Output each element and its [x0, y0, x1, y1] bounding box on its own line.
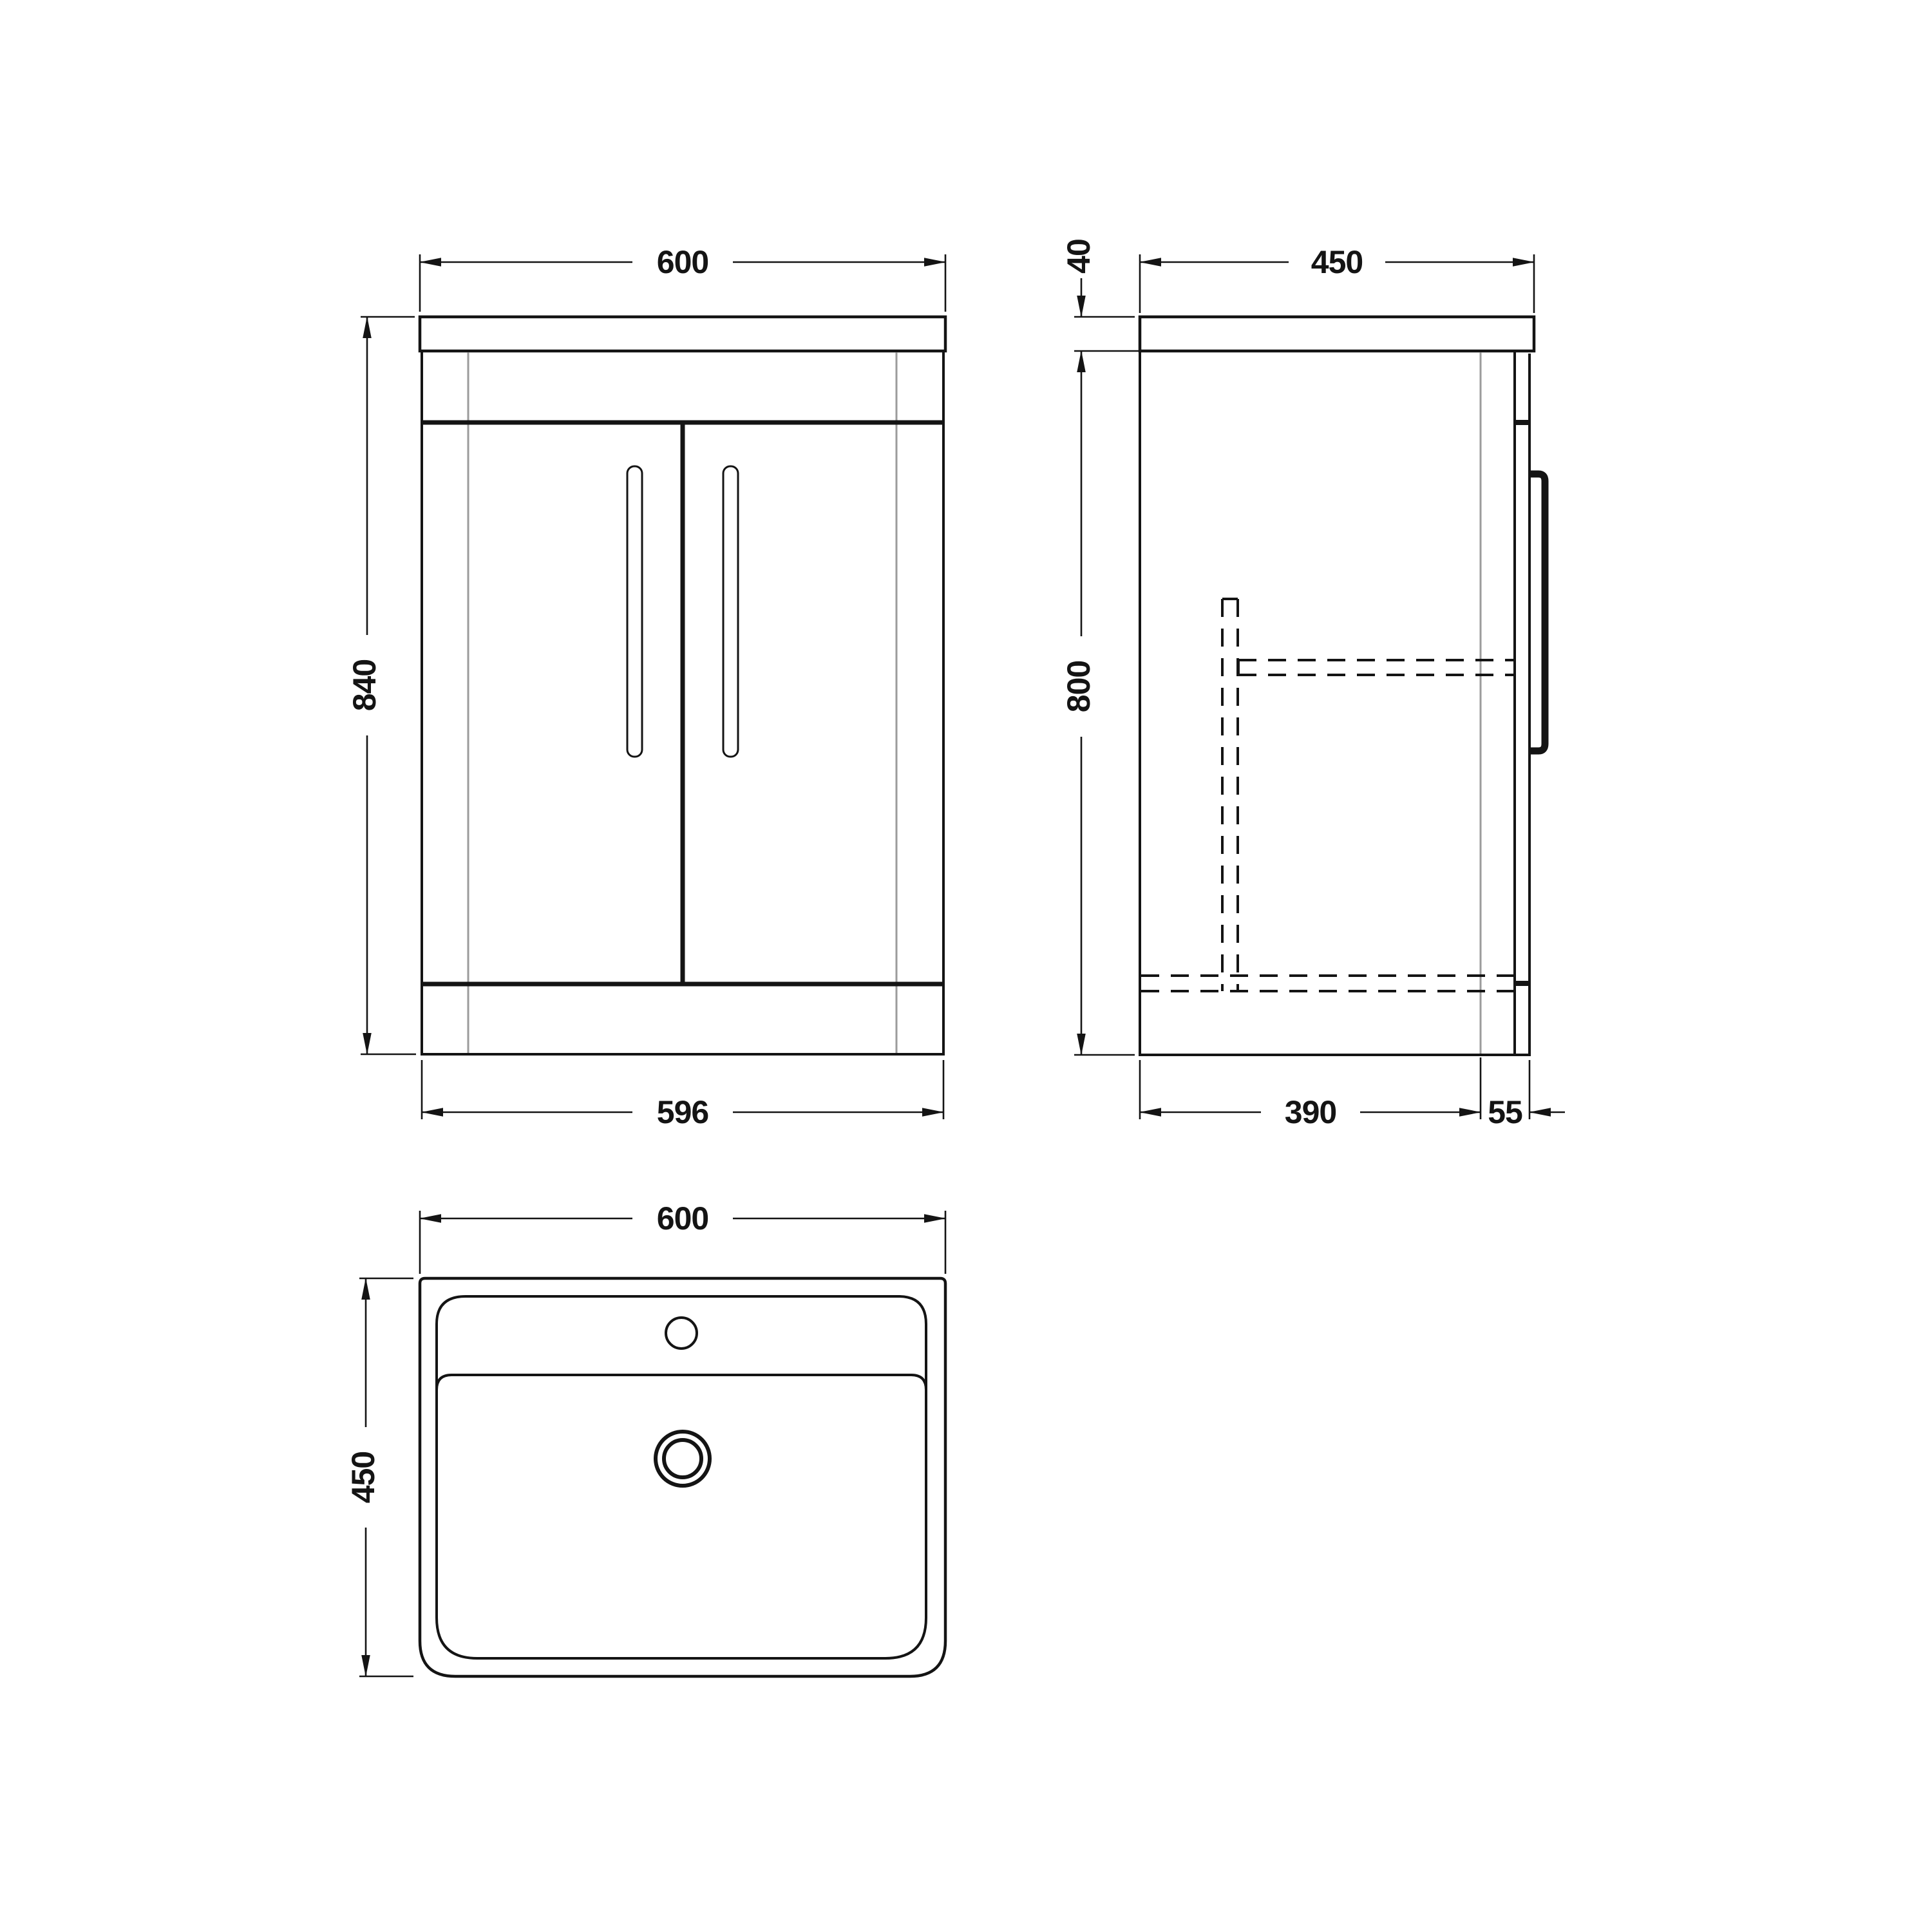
- side-dim-counter-thickness-label: 40: [1061, 239, 1097, 274]
- plan-view: 600 450: [345, 1200, 945, 1676]
- side-dim-counter-thickness: [1074, 278, 1140, 351]
- vanity-drawing-svg: 600 840 596: [0, 0, 1932, 1932]
- plan-bowl-edge: [437, 1375, 926, 1390]
- side-hidden-pipe: [1222, 599, 1238, 991]
- side-cabinet-body: [1140, 351, 1515, 1055]
- side-dim-depth-top-label: 450: [1311, 244, 1363, 280]
- front-dim-height-label: 840: [346, 659, 383, 711]
- side-dim-door-offset-label: 55: [1488, 1094, 1522, 1130]
- side-countertop: [1140, 317, 1534, 351]
- side-door-handle: [1531, 474, 1545, 751]
- side-view: 40 450 800: [1061, 239, 1565, 1130]
- front-view: 600 840 596: [346, 244, 945, 1130]
- side-hidden-bottom-panel: [1141, 976, 1514, 991]
- front-dim-width-top-label: 600: [657, 244, 708, 280]
- plan-dim-width-label: 600: [657, 1200, 708, 1236]
- side-dim-body-depth-label: 390: [1285, 1094, 1336, 1130]
- plan-tap-hole: [666, 1318, 697, 1349]
- front-dim-width-bottom-label: 596: [657, 1094, 708, 1130]
- side-hidden-shelf: [1238, 660, 1514, 675]
- front-right-door-handle: [723, 466, 738, 757]
- front-left-door-handle: [627, 466, 642, 757]
- technical-drawing-canvas: 600 840 596: [0, 0, 1932, 1932]
- front-countertop: [420, 317, 945, 351]
- plan-drain-inner: [664, 1440, 701, 1477]
- side-dim-height-label: 800: [1061, 661, 1097, 712]
- plan-dim-depth-label: 450: [345, 1452, 381, 1503]
